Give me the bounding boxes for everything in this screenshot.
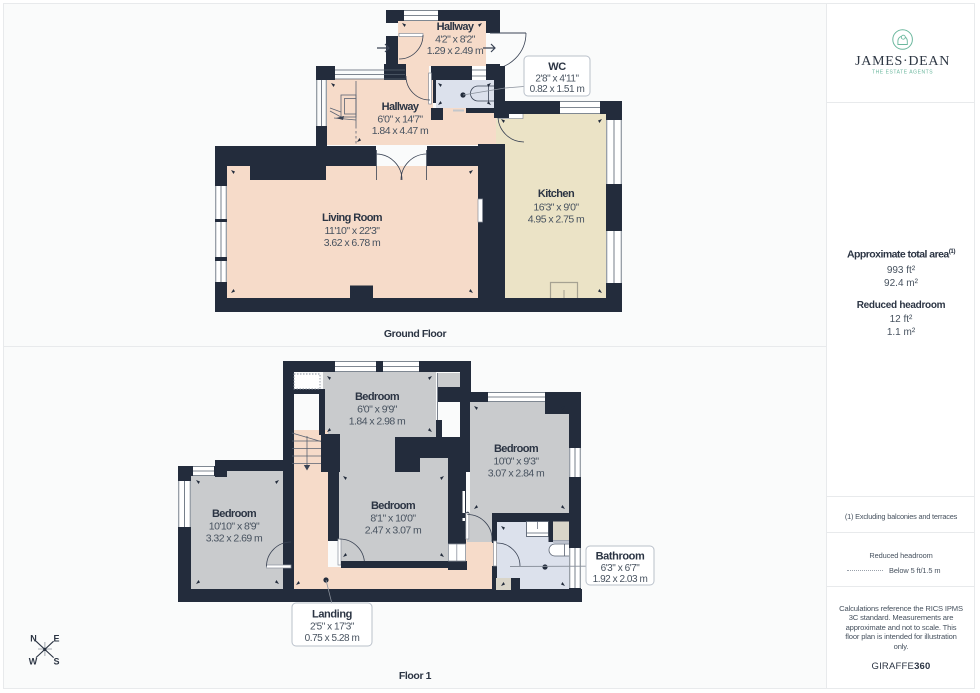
svg-text:Hallway: Hallway — [437, 21, 475, 33]
svg-text:Bedroom: Bedroom — [371, 500, 416, 512]
svg-text:6'0" x 9'9": 6'0" x 9'9" — [357, 404, 398, 416]
svg-text:Bathroom: Bathroom — [596, 551, 645, 563]
svg-text:Bedroom: Bedroom — [355, 391, 400, 403]
svg-text:1.92 x 2.03 m: 1.92 x 2.03 m — [593, 574, 648, 585]
svg-text:E: E — [53, 634, 59, 644]
svg-text:2'5" x 17'3": 2'5" x 17'3" — [310, 622, 355, 633]
svg-text:0.82 x 1.51 m: 0.82 x 1.51 m — [530, 84, 585, 95]
svg-text:Kitchen: Kitchen — [538, 188, 575, 200]
svg-text:11'10" x 22'3": 11'10" x 22'3" — [325, 225, 381, 237]
svg-text:Bedroom: Bedroom — [212, 508, 257, 520]
svg-text:Bedroom: Bedroom — [494, 443, 539, 455]
svg-text:Ground Floor: Ground Floor — [384, 328, 447, 340]
svg-text:1.29 x 2.49 m: 1.29 x 2.49 m — [427, 45, 484, 57]
svg-text:10'0" x 9'3": 10'0" x 9'3" — [493, 456, 539, 468]
svg-text:10'10" x 8'9": 10'10" x 8'9" — [209, 521, 260, 533]
svg-text:8'1" x 10'0": 8'1" x 10'0" — [370, 513, 416, 525]
svg-text:2.47 x 3.07 m: 2.47 x 3.07 m — [365, 525, 422, 537]
svg-text:Hallway: Hallway — [382, 101, 420, 113]
svg-text:Floor 1: Floor 1 — [399, 670, 432, 682]
svg-text:6'3" x 6'7": 6'3" x 6'7" — [601, 563, 641, 574]
svg-text:3.32 x 2.69 m: 3.32 x 2.69 m — [206, 533, 263, 545]
svg-text:N: N — [30, 634, 37, 644]
svg-text:6'0" x 14'7": 6'0" x 14'7" — [377, 114, 423, 126]
svg-text:16'3" x 9'0": 16'3" x 9'0" — [533, 202, 579, 214]
svg-text:W: W — [29, 657, 38, 667]
svg-text:4.95 x 2.75 m: 4.95 x 2.75 m — [528, 214, 585, 226]
svg-text:3.07 x 2.84 m: 3.07 x 2.84 m — [488, 468, 545, 480]
svg-text:S: S — [53, 657, 59, 667]
svg-text:0.75 x 5.28 m: 0.75 x 5.28 m — [305, 633, 360, 644]
svg-text:Landing: Landing — [312, 609, 352, 621]
svg-text:4'2" x 8'2": 4'2" x 8'2" — [435, 34, 476, 46]
svg-text:1.84 x 4.47 m: 1.84 x 4.47 m — [372, 125, 429, 137]
svg-text:3.62 x 6.78 m: 3.62 x 6.78 m — [324, 237, 381, 249]
svg-text:1.84 x 2.98 m: 1.84 x 2.98 m — [349, 416, 406, 428]
svg-text:Living Room: Living Room — [322, 212, 383, 224]
svg-text:WC: WC — [548, 61, 566, 73]
